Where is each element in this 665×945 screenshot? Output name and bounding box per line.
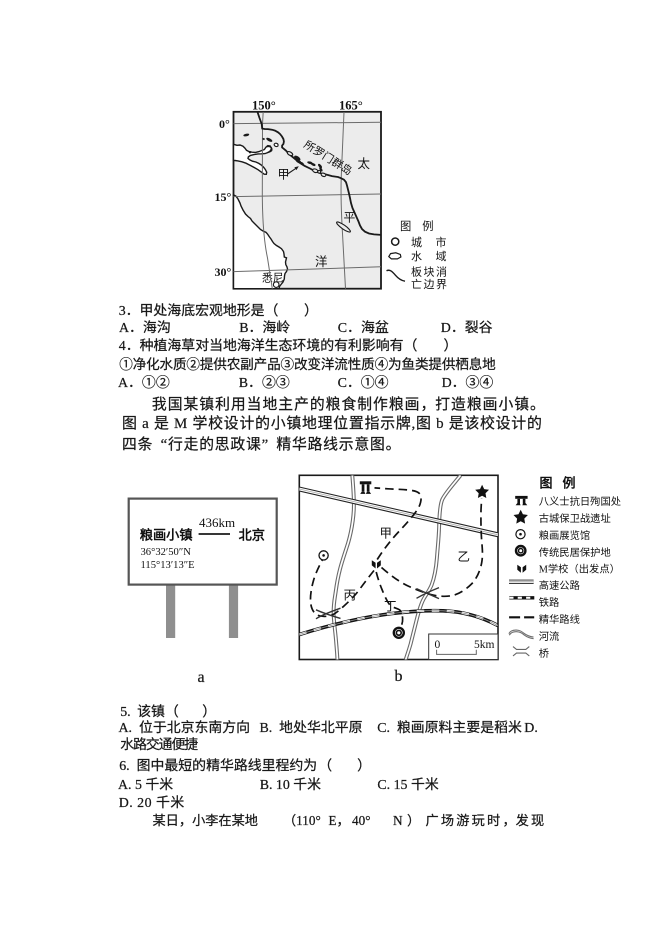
svg-text:5km: 5km (474, 639, 495, 651)
svg-text:甲: 甲 (380, 527, 393, 541)
svg-text:古城保卫战遗址: 古城保卫战遗址 (539, 512, 611, 525)
svg-text:36°32′50″N: 36°32′50″N (141, 547, 192, 558)
svg-text:水域: 水域 (411, 250, 460, 263)
svg-text:粮画小镇: 粮画小镇 (140, 527, 193, 543)
svg-text:15°: 15° (215, 190, 232, 204)
svg-text:30°: 30° (215, 265, 232, 279)
svg-text:北京: 北京 (239, 527, 265, 543)
svg-text:165°: 165° (339, 99, 363, 113)
svg-text:桥: 桥 (539, 648, 549, 660)
svg-text:高速公路: 高速公路 (539, 579, 581, 592)
svg-text:河流: 河流 (539, 630, 560, 643)
svg-text:太: 太 (358, 156, 371, 171)
svg-text:平: 平 (344, 211, 356, 225)
svg-text:150°: 150° (252, 99, 276, 113)
svg-text:甲: 甲 (278, 168, 290, 182)
svg-text:亡边界: 亡边界 (411, 277, 449, 291)
svg-text:图例: 图例 (400, 219, 445, 233)
svg-text:精华路线: 精华路线 (539, 613, 580, 626)
svg-text:图例: 图例 (540, 476, 586, 491)
svg-text:粮画展览馆: 粮画展览馆 (539, 529, 590, 542)
svg-text:0°: 0° (219, 117, 230, 131)
svg-text:丁: 丁 (384, 600, 397, 614)
svg-text:铁路: 铁路 (539, 596, 560, 609)
svg-text:洋: 洋 (315, 254, 328, 269)
svg-text:传统民居保护地: 传统民居保护地 (539, 546, 611, 559)
svg-text:436km: 436km (199, 515, 235, 530)
svg-text:0: 0 (435, 639, 441, 651)
svg-text:板块消: 板块消 (411, 265, 449, 279)
svg-text:115°13′13″E: 115°13′13″E (141, 560, 195, 571)
svg-text:M学校（出发点）: M学校（出发点） (539, 563, 620, 576)
svg-text:悉尼: 悉尼 (262, 272, 284, 285)
svg-text:乙: 乙 (458, 550, 471, 564)
svg-text:城市: 城市 (411, 235, 460, 249)
svg-text:八义士抗日殉国处: 八义士抗日殉国处 (539, 495, 621, 508)
svg-text:丙: 丙 (344, 589, 357, 603)
